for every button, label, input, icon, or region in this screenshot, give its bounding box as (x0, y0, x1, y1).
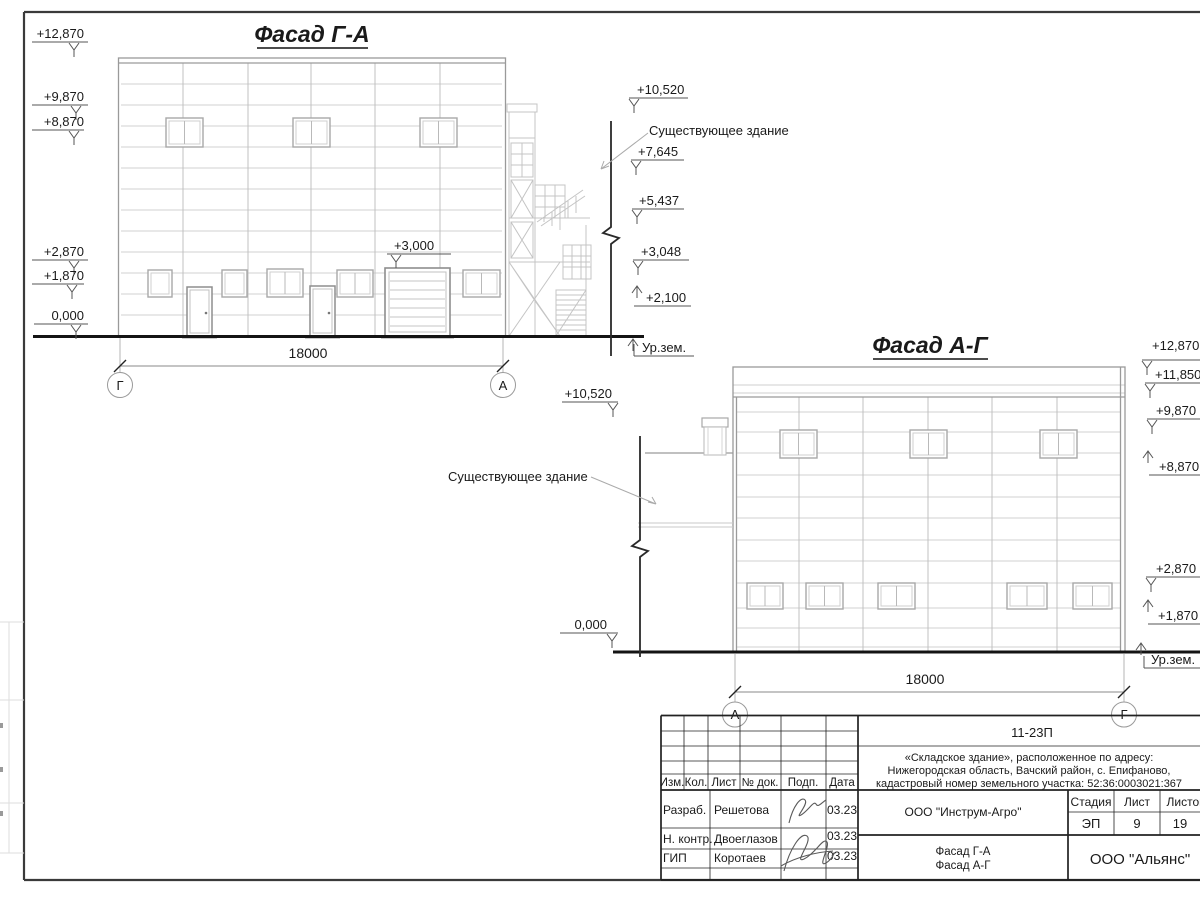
elevation-value: +7,645 (638, 144, 678, 159)
sheet-label: Лист (1124, 795, 1151, 809)
col-data: Дата (829, 777, 855, 789)
elevation-value: +1,870 (1158, 608, 1198, 623)
leader-line (591, 477, 656, 504)
elevation-value: +2,870 (44, 244, 84, 259)
existing-building-label: Существующее здание (448, 469, 588, 484)
elevation-value: +2,100 (646, 290, 686, 305)
title-block: 11-23П «Складское здание», расположенное… (660, 716, 1200, 881)
elevation-values-right: +12,870 +11,850 +9,870 +8,870 +2,870 +1,… (1151, 338, 1200, 667)
upper-windows (780, 430, 1077, 458)
elevation-value: 0,000 (51, 308, 84, 323)
existing-building-fragment (638, 418, 733, 527)
row-role: Разраб. (663, 803, 706, 817)
sheet-value: 9 (1133, 816, 1140, 831)
elevation-value: +10,520 (565, 386, 612, 401)
row-name: Двоеглазов (714, 832, 778, 846)
elevation-value: +5,437 (639, 193, 679, 208)
drawing-name-line1: Фасад Г-А (936, 846, 991, 858)
col-dok: № док. (742, 777, 779, 789)
stage-label: Стадия (1071, 795, 1112, 809)
org-name: ООО "Инструм-Агро" (905, 805, 1022, 819)
elevation-value: +9,870 (44, 89, 84, 104)
gate-elevation-mark: +3,000 (387, 238, 451, 268)
gate (381, 268, 454, 338)
elevation-value: +11,850 (1155, 367, 1200, 382)
upper-windows (166, 118, 457, 147)
break-line (632, 436, 648, 657)
elevation-value: +9,870 (1156, 403, 1196, 418)
existing-building-label: Существующее здание (649, 123, 789, 138)
facade-ga-annotations: Фасад Г-А +12,870 +9,870 +8,870 +2,870 +… (32, 21, 789, 398)
row-role: ГИП (663, 851, 687, 865)
company-name: ООО "Альянс" (1090, 851, 1190, 868)
col-izm: Изм. (660, 777, 685, 789)
elevation-value: +8,870 (44, 114, 84, 129)
elevation-value: +2,870 (1156, 561, 1196, 576)
drawing-name-line2: Фасад А-Г (936, 860, 992, 872)
sheet-left-margin (0, 622, 24, 853)
elevation-value: +3,000 (394, 238, 434, 253)
dimension-value: 18000 (289, 345, 328, 361)
project-code: 11-23П (1011, 725, 1053, 740)
dimension-line: 18000 (114, 338, 509, 372)
facade-drawing-canvas: Фасад Г-А +12,870 +9,870 +8,870 +2,870 +… (0, 0, 1200, 900)
elevation-values-left: +12,870 +9,870 +8,870 +2,870 +1,870 0,00… (37, 26, 84, 323)
facade-ga-drawing (33, 58, 644, 356)
col-kol: Кол. (685, 777, 708, 789)
sheets-label: Листов (1167, 795, 1200, 809)
col-podp: Подп. (788, 777, 819, 789)
project-address-line1: «Складское здание», расположенное по адр… (905, 752, 1154, 764)
elevation-value: +12,870 (37, 26, 84, 41)
elevation-value: +10,520 (637, 82, 684, 97)
facade-ag-annotations: Фасад А-Г +10,520 0,000 Существующее зда… (448, 332, 1200, 727)
elevation-value: +8,870 (1159, 459, 1199, 474)
row-role: Н. контр. (663, 832, 713, 846)
row-name: Коротаев (714, 851, 766, 865)
facade-ga-title: Фасад Г-А (254, 21, 369, 47)
elevation-value: 0,000 (574, 617, 607, 632)
existing-stair-tower (507, 104, 591, 336)
elevation-value: +1,870 (44, 268, 84, 283)
row-name: Решетова (714, 803, 769, 817)
signature-rows: Разраб. Решетова 03.23 Н. контр. Двоегла… (663, 803, 857, 865)
axis-bubbles: Г А (108, 373, 516, 398)
elevation-marks-left (32, 42, 88, 339)
drawing-sheet: Фасад Г-А +12,870 +9,870 +8,870 +2,870 +… (0, 0, 1200, 900)
axis-label: А (731, 707, 740, 722)
row-date: 03.23 (827, 803, 857, 817)
elevation-value: +3,048 (641, 244, 681, 259)
axis-bubbles: А Г (723, 702, 1137, 727)
dimension-line: 18000 (729, 654, 1130, 702)
break-line (603, 121, 619, 356)
elevation-marks-left (560, 402, 618, 648)
ground-level-label: Ур.зем. (642, 340, 686, 355)
elevation-value: +12,870 (1152, 338, 1199, 353)
project-address-line3: кадастровый номер земельного участка: 52… (876, 778, 1182, 790)
stage-value: ЭП (1082, 816, 1101, 831)
axis-label: Г (116, 378, 123, 393)
col-list: Лист (712, 777, 738, 789)
axis-label: А (499, 378, 508, 393)
facade-ag-title: Фасад А-Г (872, 332, 988, 358)
facade-ag-drawing (613, 367, 1200, 657)
sheets-value: 19 (1173, 816, 1187, 831)
ground-level-label: Ур.зем. (1151, 652, 1195, 667)
project-address-line2: Нижегородская область, Вачский район, с.… (888, 765, 1171, 777)
row-date: 03.23 (827, 829, 857, 843)
dimension-value: 18000 (906, 671, 945, 687)
axis-label: Г (1120, 707, 1127, 722)
